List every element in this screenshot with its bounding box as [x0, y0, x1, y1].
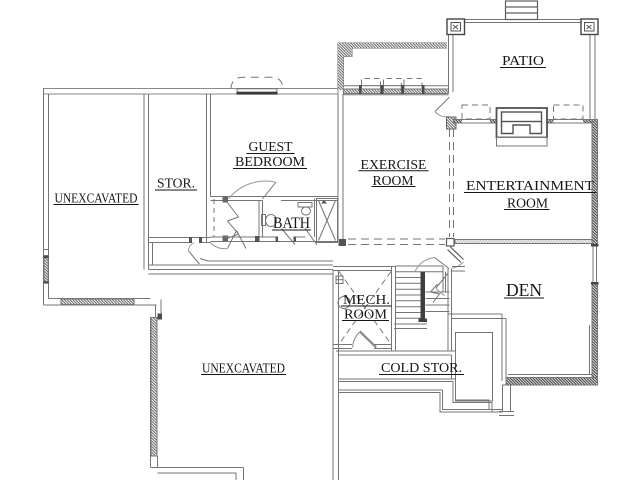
- svg-text:DEN: DEN: [506, 280, 542, 300]
- svg-text:GUEST: GUEST: [249, 140, 293, 155]
- svg-text:STOR.: STOR.: [157, 177, 195, 192]
- svg-text:PATIO: PATIO: [502, 54, 544, 69]
- svg-text:COLD STOR.: COLD STOR.: [381, 361, 462, 376]
- svg-text:BATH: BATH: [273, 215, 310, 232]
- svg-text:BEDROOM: BEDROOM: [235, 155, 306, 170]
- svg-text:ENTERTAINMENT: ENTERTAINMENT: [466, 179, 594, 194]
